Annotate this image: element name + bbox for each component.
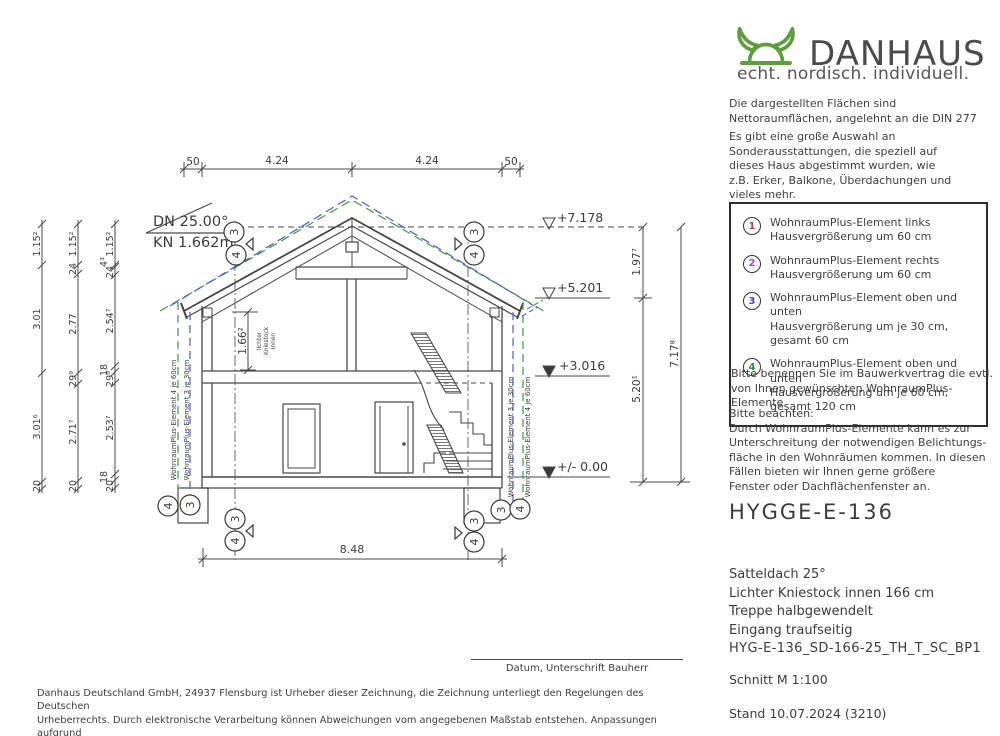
- option-3-text: WohnraumPlus-Element oben und unten Haus…: [770, 291, 976, 348]
- doors: [283, 402, 413, 473]
- marker-3: 3: [228, 229, 241, 236]
- axis-arrow: [246, 525, 253, 537]
- text-line: Die dargestellten Flächen sind: [729, 97, 991, 112]
- dim-label: 50: [504, 156, 517, 168]
- dim-label: 29⁹: [105, 371, 116, 387]
- spec-line: Treppe halbgewendelt: [729, 603, 934, 622]
- marker-3: 3: [468, 229, 481, 236]
- wohnraumplus-wall-lines: [178, 302, 523, 502]
- text-line: Hausvergrößerung um 60 cm: [770, 230, 931, 243]
- text-line: Bitte beachten:: [729, 407, 991, 422]
- spec-line: Eingang traufseitig: [729, 622, 934, 641]
- level-marker-ground: [543, 467, 555, 478]
- level-label: +5.201: [557, 280, 603, 295]
- dim-label: 24: [68, 263, 79, 275]
- option-item-3: 3 WohnraumPlus-Element oben und unten Ha…: [743, 291, 976, 348]
- text-line: Sonderausstattungen, die speziell auf: [729, 145, 991, 160]
- text-line: WohnraumPlus-Element oben und unten: [770, 291, 957, 318]
- text-line: z.B. Erker, Balkone, Überdachungen und: [729, 174, 991, 189]
- top-dimension-chain: [180, 162, 524, 177]
- intro-paragraph-1: Die dargestellten Flächen sind Nettoraum…: [729, 97, 991, 126]
- dim-label: 2.77: [68, 313, 79, 334]
- marker-4: 4: [162, 503, 175, 510]
- text-line: vieles mehr.: [729, 188, 991, 203]
- level-marker-eaves: [543, 288, 555, 299]
- spec-line: Satteldach 25°: [729, 566, 934, 585]
- text-line: Bitte benennen Sie im Bauwerkvertrag die…: [731, 367, 993, 382]
- dim-label: 2.54⁷: [105, 308, 116, 333]
- text-line: Urheberrechts. Durch elektronische Verar…: [37, 714, 677, 736]
- stair-balustrade-lower: [427, 425, 463, 473]
- marker-4: 4: [468, 252, 481, 259]
- kniestock-dim-label: 1.66²: [237, 327, 249, 355]
- text-line: dieses Haus abgestimmt wurden, wie: [729, 159, 991, 174]
- dim-label: 20: [105, 480, 116, 492]
- signature-label: Datum, Unterschrift Bauherr: [506, 663, 648, 674]
- dim-label: 2.71⁷: [68, 419, 79, 444]
- left-chain-labels: 1.15² 3.01 3.01⁶ 20 1.15² 24 2.77 29⁹ 2.…: [32, 231, 116, 492]
- wplus-label-left-green: WohnraumPlus-Element 4 je 60cm: [170, 359, 178, 480]
- stair-steps: [449, 412, 492, 445]
- wplus-label-right-blue: WohnraumPlus-Element 3 je 30cm: [507, 376, 515, 497]
- level-label: +7.178: [557, 210, 603, 225]
- dim-label: 1.15²: [32, 231, 43, 256]
- copyright-disclaimer: Danhaus Deutschland GmbH, 24937 Flensbur…: [37, 687, 677, 736]
- dim-label: 4.24: [415, 155, 439, 167]
- note-beachten: Bitte beachten: Durch WohnraumPlus-Eleme…: [729, 407, 991, 495]
- dim-label: 50: [186, 156, 199, 168]
- dim-label: 20: [68, 480, 79, 492]
- kniestock-note-3: innen: [271, 333, 277, 350]
- text-line: Fenster oder Dachflächenfenster an.: [729, 480, 991, 495]
- text-line: Hausvergrößerung um 60 cm: [770, 268, 931, 281]
- model-code: HYG-E-136_SD-166-25_TH_T_SC_BP1: [729, 641, 981, 656]
- section-scale: Schnitt M 1:100: [729, 672, 828, 687]
- marker-3: 3: [184, 502, 197, 509]
- marker-3: 3: [495, 507, 508, 514]
- door-handle: [402, 442, 405, 445]
- dim-label: 1.15²: [105, 231, 116, 256]
- kniestock-note-1: lichter: [257, 331, 263, 350]
- option-2-text: WohnraumPlus-Element rechts Hausvergröße…: [770, 254, 939, 283]
- signature-field: Datum, Unterschrift Bauherr: [471, 659, 683, 674]
- wplus-label-right-green: WohnraumPlus-Element 4 je 60cm: [524, 376, 532, 497]
- element-markers: 3 4 3 4 4 3 3 4 3 4 3 4: [158, 222, 530, 552]
- axis-arrow: [455, 527, 462, 539]
- model-title: HYGGE-E-136: [729, 500, 894, 524]
- door-middle: [375, 402, 413, 473]
- dim-label: 3.01⁶: [32, 414, 43, 439]
- dim-label: 4.24: [265, 155, 289, 167]
- option-1-badge: 1: [743, 217, 761, 235]
- text-line: Danhaus Deutschland GmbH, 24937 Flensbur…: [37, 687, 677, 714]
- option-item-2: 2 WohnraumPlus-Element rechts Hausvergrö…: [743, 254, 976, 283]
- option-item-1: 1 WohnraumPlus-Element links Hausvergröß…: [743, 216, 976, 245]
- marker-3: 3: [468, 518, 481, 525]
- marker-4: 4: [514, 506, 527, 513]
- revision-date: Stand 10.07.2024 (3210): [729, 706, 886, 721]
- marker-4: 4: [229, 538, 242, 545]
- text-line: Nettoraumflächen, angelehnt an die DIN 2…: [729, 112, 991, 127]
- text-line: Fällen bieten wir Ihnen gerne größere: [729, 465, 991, 480]
- option-2-badge: 2: [743, 255, 761, 273]
- intro-paragraph-2: Es gibt eine große Auswahl an Sonderauss…: [729, 130, 991, 203]
- brand-tagline: echt. nordisch. individuell.: [737, 64, 969, 84]
- dim-label: 5.20¹: [631, 375, 643, 403]
- dim-label: 3.01: [32, 308, 43, 329]
- model-specs: Satteldach 25° Lichter Kniestock innen 1…: [729, 566, 934, 640]
- roof-pitch-annotation: DN 25.00° KN 1.662m: [146, 203, 234, 251]
- dim-label: 1.97⁷: [631, 248, 643, 276]
- plan-sheet: 50 4.24 4.24 50 DN 25.00° KN 1.662m: [0, 0, 1000, 736]
- option-1-text: WohnraumPlus-Element links Hausvergrößer…: [770, 216, 931, 245]
- text-line: gesamt 60 cm: [770, 334, 849, 347]
- level-labels: +7.178 +5.201 +3.016 +/- 0.00: [557, 210, 608, 474]
- dim-label: 29⁹: [68, 371, 79, 387]
- level-marker-floor1: [543, 366, 555, 377]
- text-line: Durch WohnraumPlus-Elemente kann es zur: [729, 422, 991, 437]
- door-left: [283, 404, 320, 473]
- text-line: Es gibt eine große Auswahl an: [729, 130, 991, 145]
- note-bauwerkvertrag: Bitte benennen Sie im Bauwerkvertrag die…: [731, 367, 993, 411]
- marker-4: 4: [230, 252, 243, 259]
- spec-line: Lichter Kniestock innen 166 cm: [729, 585, 934, 604]
- dim-label: 4³: [99, 257, 110, 267]
- marker-3: 3: [229, 516, 242, 523]
- level-label: +/- 0.00: [557, 459, 608, 474]
- text-line: WohnraumPlus-Element links: [770, 216, 930, 229]
- dim-label: 7.17⁸: [669, 340, 681, 368]
- wplus-label-left-blue: WohnraumPlus-Element 3 je 30cm: [183, 359, 191, 480]
- level-label: +3.016: [559, 358, 605, 373]
- walls-and-slabs: [178, 279, 502, 523]
- text-line: fläche in den Wohnräumen kommen. In dies…: [729, 451, 991, 466]
- option-3-badge: 3: [743, 292, 761, 310]
- dim-label: 2.53⁷: [105, 415, 116, 440]
- text-line: Unterschreitung der notwendigen Belichtu…: [729, 436, 991, 451]
- dim-label: 1.15²: [68, 231, 79, 256]
- kniestock-note-2: Kniestock: [264, 326, 270, 355]
- dim-label: 8.48: [340, 543, 365, 556]
- axis-lines: [235, 222, 468, 560]
- axis-arrow: [246, 238, 253, 250]
- dim-label: 20: [32, 480, 43, 492]
- roof-pitch-label: DN 25.00°: [153, 214, 228, 230]
- staircase: [411, 333, 492, 473]
- text-line: WohnraumPlus-Element rechts: [770, 254, 939, 267]
- text-line: Hausvergrößerung um je 30 cm,: [770, 320, 948, 333]
- marker-4: 4: [468, 539, 481, 546]
- axis-arrow: [455, 238, 462, 250]
- kniestock-height-label: KN 1.662m: [153, 235, 234, 251]
- stair-balustrade-upper: [411, 333, 461, 393]
- dim-label: 24: [105, 266, 116, 278]
